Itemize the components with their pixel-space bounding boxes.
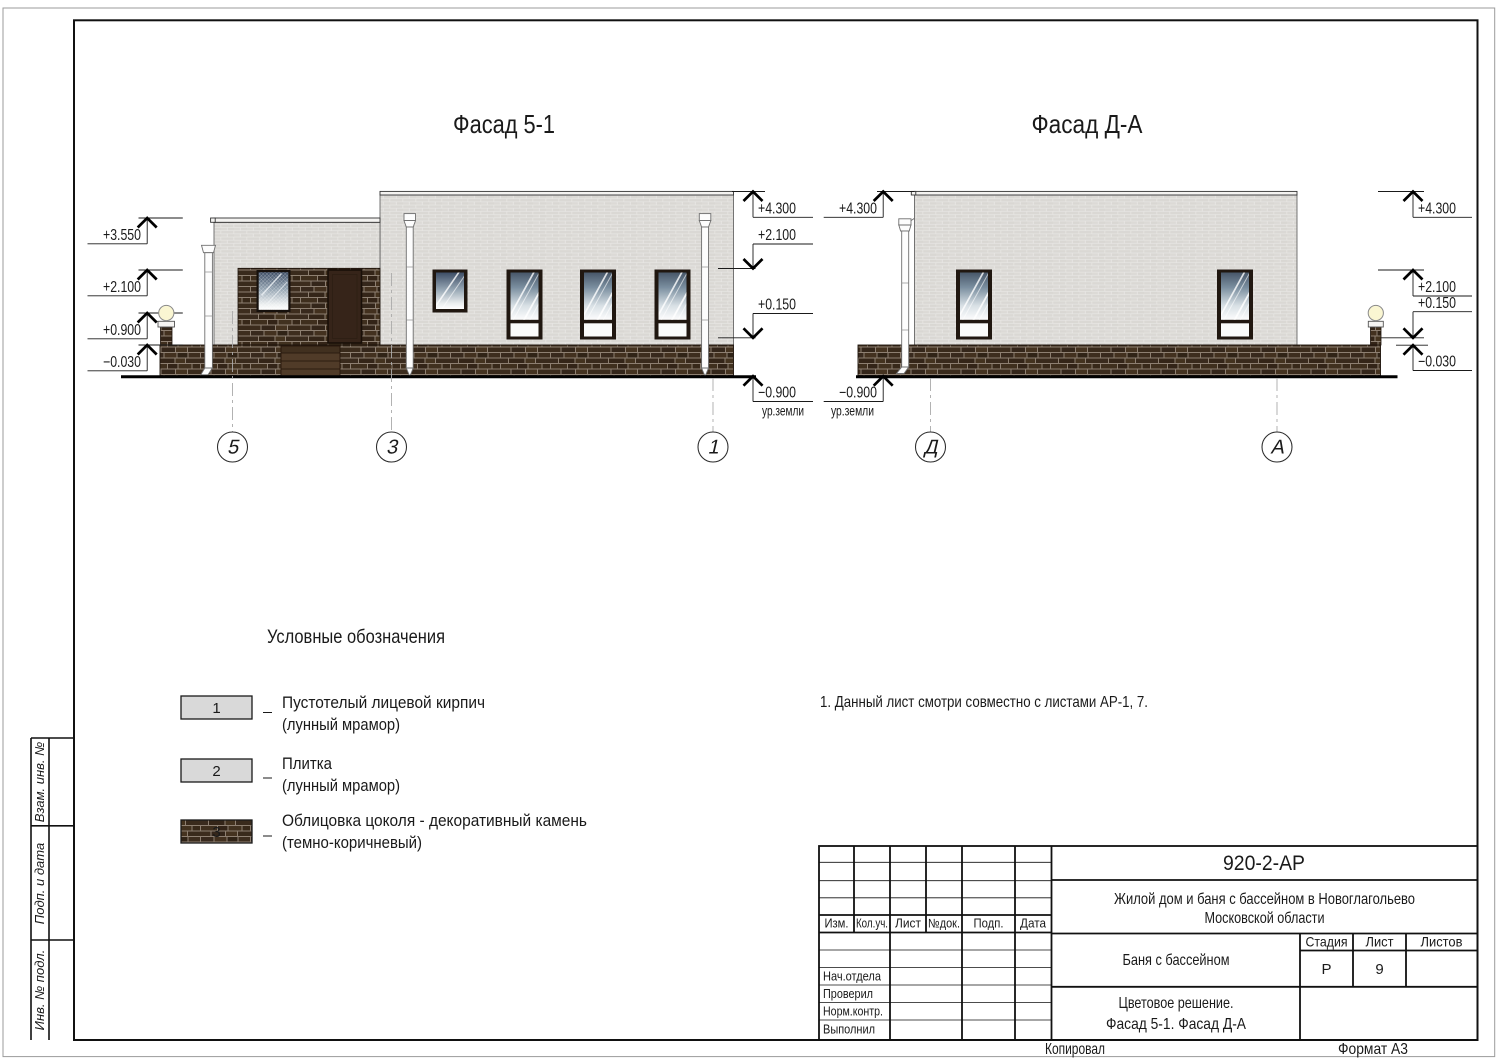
svg-text:(лунный мрамор): (лунный мрамор) bbox=[282, 776, 400, 795]
svg-text:1: 1 bbox=[212, 700, 220, 717]
svg-text:Норм.контр.: Норм.контр. bbox=[823, 1005, 883, 1019]
svg-text:Взам. инв. №: Взам. инв. № bbox=[32, 742, 47, 822]
svg-text:−0.030: −0.030 bbox=[103, 354, 141, 371]
svg-text:Нач.отдела: Нач.отдела bbox=[823, 970, 881, 984]
svg-text:Выполнил: Выполнил bbox=[823, 1023, 875, 1037]
svg-text:+4.300: +4.300 bbox=[758, 201, 796, 218]
svg-text:−0.900: −0.900 bbox=[839, 385, 877, 402]
svg-text:Баня с бассейном: Баня с бассейном bbox=[1123, 952, 1230, 969]
svg-text:+0.900: +0.900 bbox=[103, 322, 141, 339]
svg-text:Цветовое решение.: Цветовое решение. bbox=[1119, 995, 1234, 1012]
svg-text:Условные обозначения: Условные обозначения bbox=[267, 626, 445, 648]
svg-text:Формат А3: Формат А3 bbox=[1338, 1041, 1408, 1058]
svg-text:Облицовка цоколя - декоративны: Облицовка цоколя - декоративный камень bbox=[282, 811, 587, 830]
svg-text:Плитка: Плитка bbox=[282, 754, 332, 773]
svg-text:−0.900: −0.900 bbox=[758, 385, 796, 402]
svg-text:Подп.: Подп. bbox=[974, 917, 1004, 931]
svg-text:Фасад Д-А: Фасад Д-А bbox=[1032, 109, 1144, 139]
svg-text:+2.100: +2.100 bbox=[758, 227, 796, 244]
svg-text:Московской области: Московской области bbox=[1205, 910, 1325, 927]
svg-text:ур.земли: ур.земли bbox=[831, 403, 874, 419]
svg-text:3: 3 bbox=[212, 824, 220, 841]
svg-text:Инв. № подл.: Инв. № подл. bbox=[32, 950, 47, 1031]
svg-text:Проверил: Проверил bbox=[823, 987, 873, 1001]
svg-text:920-2-АР: 920-2-АР bbox=[1223, 852, 1305, 875]
svg-text:+2.100: +2.100 bbox=[103, 279, 141, 296]
svg-text:Изм.: Изм. bbox=[825, 917, 849, 931]
svg-text:2: 2 bbox=[212, 763, 220, 780]
svg-text:ур.земли: ур.земли bbox=[762, 403, 804, 419]
svg-text:Фасад 5-1: Фасад 5-1 bbox=[453, 109, 555, 139]
svg-text:(темно-коричневый): (темно-коричневый) bbox=[282, 833, 422, 852]
svg-text:Лист: Лист bbox=[1366, 934, 1395, 950]
svg-text:№док.: №док. bbox=[928, 917, 960, 931]
svg-text:+2.100: +2.100 bbox=[1418, 279, 1456, 296]
svg-text:Дата: Дата bbox=[1020, 917, 1046, 931]
svg-text:Листов: Листов bbox=[1421, 934, 1463, 950]
svg-text:(лунный мрамор): (лунный мрамор) bbox=[282, 715, 400, 734]
svg-text:Копировал: Копировал bbox=[1045, 1041, 1105, 1058]
svg-text:+4.300: +4.300 bbox=[1418, 201, 1456, 218]
svg-text:1. Данный лист смотри совместн: 1. Данный лист смотри совместно с листам… bbox=[820, 694, 1148, 711]
svg-text:+3.550: +3.550 bbox=[103, 227, 141, 244]
svg-text:−0.030: −0.030 bbox=[1418, 354, 1456, 371]
svg-text:+0.150: +0.150 bbox=[1418, 295, 1456, 312]
svg-text:Кол.уч.: Кол.уч. bbox=[856, 917, 888, 931]
svg-text:Стадия: Стадия bbox=[1306, 934, 1348, 950]
svg-text:Р: Р bbox=[1321, 961, 1331, 978]
svg-text:Фасад 5-1. Фасад Д-А: Фасад 5-1. Фасад Д-А bbox=[1106, 1016, 1246, 1033]
svg-text:9: 9 bbox=[1375, 961, 1383, 978]
svg-text:Подп. и дата: Подп. и дата bbox=[32, 843, 47, 924]
svg-text:+0.150: +0.150 bbox=[758, 297, 796, 314]
svg-text:Лист: Лист bbox=[895, 917, 921, 931]
svg-text:Жилой дом и баня с бассейном в: Жилой дом и баня с бассейном в Новоглаго… bbox=[1114, 891, 1415, 908]
svg-text:+4.300: +4.300 bbox=[839, 201, 877, 218]
svg-text:Пустотелый лицевой кирпич: Пустотелый лицевой кирпич bbox=[282, 693, 485, 712]
